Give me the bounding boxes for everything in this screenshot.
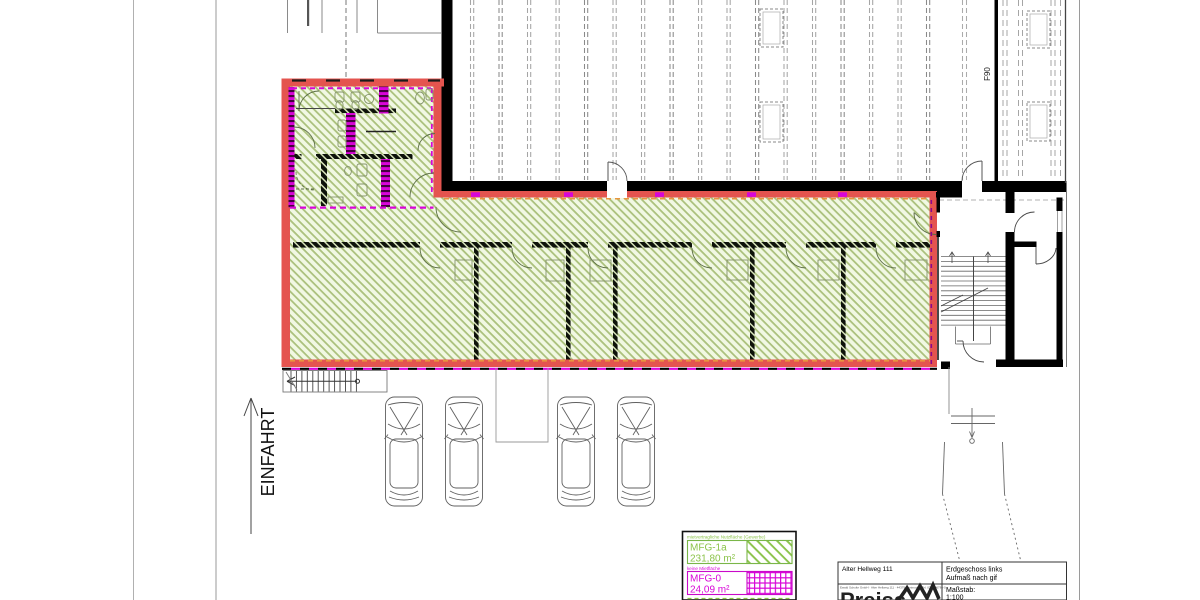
- svg-text:mietvertragliche Nutzfläche (G: mietvertragliche Nutzfläche (Gewerbe): [687, 535, 766, 540]
- svg-text:231,80 m²: 231,80 m²: [690, 554, 736, 565]
- svg-text:Aufmaß nach gif: Aufmaß nach gif: [946, 575, 997, 582]
- svg-text:MFG-0: MFG-0: [690, 574, 722, 585]
- svg-text:Erdgeschoss links: Erdgeschoss links: [946, 567, 1003, 574]
- svg-text:Preiss: Preiss: [840, 588, 906, 600]
- svg-text:Maßstab:: Maßstab:: [946, 587, 975, 594]
- svg-text:EINFAHRT: EINFAHRT: [258, 408, 278, 497]
- svg-text:1:100: 1:100: [946, 595, 964, 600]
- svg-text:F90: F90: [983, 67, 992, 81]
- svg-text:keine Mietfläche: keine Mietfläche: [687, 566, 721, 571]
- svg-text:Alter Hellweg 111: Alter Hellweg 111: [842, 566, 893, 573]
- svg-text:24,09 m²: 24,09 m²: [690, 585, 730, 596]
- svg-text:MFG-1a: MFG-1a: [690, 543, 727, 554]
